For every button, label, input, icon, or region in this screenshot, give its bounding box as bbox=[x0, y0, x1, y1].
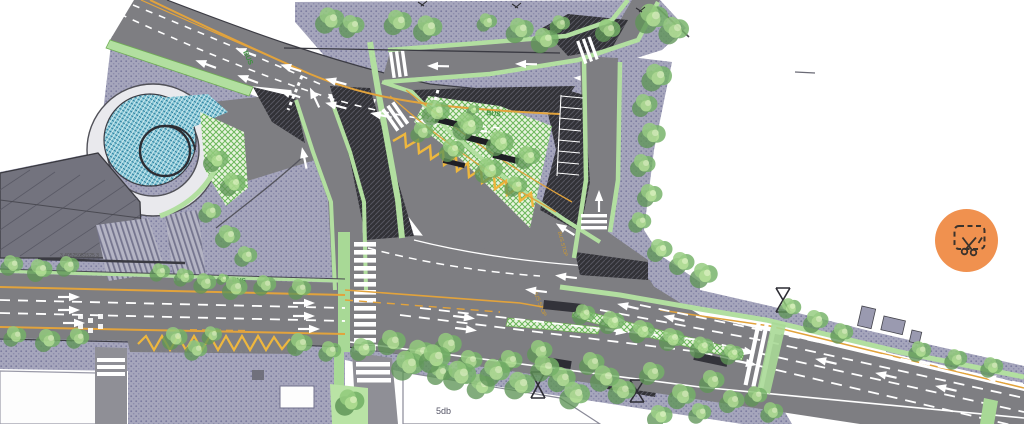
svg-text:5db: 5db bbox=[436, 406, 451, 416]
